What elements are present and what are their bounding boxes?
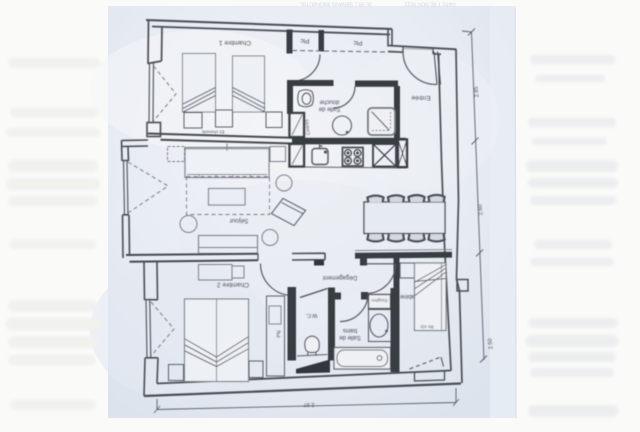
svg-text:Dégagement: Dégagement (322, 274, 357, 280)
svg-text:Salle de: Salle de (338, 334, 360, 340)
svg-text:2.50: 2.50 (488, 338, 495, 349)
svg-text:2.85: 2.85 (474, 86, 481, 97)
svg-text:Plc: Plc (300, 37, 310, 44)
svg-text:Entrée: Entrée (411, 94, 431, 101)
svg-text:2.97: 2.97 (304, 401, 315, 407)
svg-text:W.C.: W.C. (305, 312, 317, 318)
svg-text:douche: douche (319, 99, 339, 105)
svg-text:2.60: 2.60 (478, 204, 485, 215)
svg-text:Chambre 1: Chambre 1 (219, 39, 252, 46)
svg-text:bains: bains (343, 327, 357, 333)
svg-text:Etagère: Etagère (371, 298, 388, 303)
svg-text:04/91 T 8E NOV 9012: 04/91 T 8E NOV 9012 (404, 1, 455, 7)
svg-text:Plc: Plc (353, 39, 363, 46)
svg-text:Salle de: Salle de (318, 106, 340, 112)
svg-text:Chambre 2: Chambre 2 (217, 281, 250, 288)
svg-text:lits s/p: lits s/p (420, 325, 433, 330)
svg-text:Et chevets: Et chevets (201, 129, 224, 135)
svg-text:JE 38 1 SBIWNG 3NOHdOTSL: JE 38 1 SBIWNG 3NOHdOTSL (300, 1, 372, 7)
svg-text:Plg: Plg (276, 330, 283, 338)
svg-text:Séjour: Séjour (229, 217, 249, 224)
